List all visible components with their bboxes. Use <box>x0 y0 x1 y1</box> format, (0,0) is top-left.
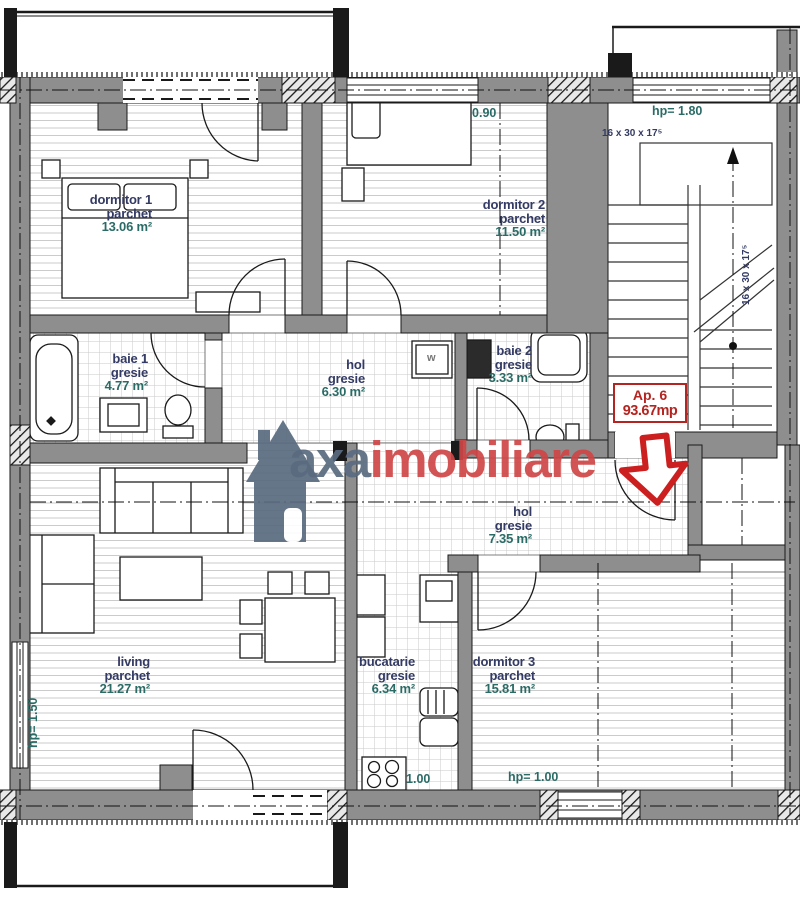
pier <box>160 765 192 790</box>
room-label-hol2: hol gresie 7.35 m² <box>462 505 532 546</box>
chair <box>305 572 329 594</box>
watermark-logo-text: axaimobiliare <box>289 434 596 485</box>
toilet-tank <box>163 426 193 438</box>
hp-label-dormitor3: hp= 1.00 <box>508 770 558 784</box>
wall-dorm1-dorm2 <box>302 103 322 315</box>
wall-bedrooms-hall-b <box>285 315 347 333</box>
pillow <box>352 98 380 138</box>
chair <box>268 572 292 594</box>
stair-dimension-note-vertical: 16 x 30 x 17⁵ <box>741 233 752 305</box>
stair-dimension-note: 16 x 30 x 17⁵ <box>602 128 662 139</box>
nightstand <box>190 160 208 178</box>
room-label-dormitor1: dormitor 1 parchet 13.06 m² <box>60 193 152 234</box>
dresser <box>196 292 260 312</box>
room-label-dormitor3: dormitor 3 parchet 15.81 m² <box>440 655 535 696</box>
coffee-table <box>120 557 202 600</box>
room-area: 6.34 m² <box>372 681 415 696</box>
room-label-hol1: hol gresie 6.30 m² <box>295 358 365 399</box>
insulation-bottom <box>0 820 800 825</box>
burner <box>386 761 399 774</box>
wall-dorm2-stairs <box>547 103 608 333</box>
chair <box>240 600 262 624</box>
apartment-area: 93.67mp <box>615 403 685 420</box>
shower-sink-inner <box>538 335 580 375</box>
room-area: 6.30 m² <box>322 384 365 399</box>
room-label-baie1: baie 1 gresie 4.77 m² <box>70 352 148 393</box>
room-label-bucatarie: bucatarie gresie 6.34 m² <box>340 655 415 696</box>
room-area: 4.77 m² <box>105 378 148 393</box>
stair-direction <box>727 147 739 428</box>
wall-bottom <box>0 790 800 820</box>
burner <box>368 775 381 788</box>
pier <box>262 103 287 130</box>
wall-baie1-stub <box>205 333 222 340</box>
wall-hol-dorm3-a <box>448 555 478 572</box>
nightstand <box>42 160 60 178</box>
room-label-dormitor2: dormitor 2 parchet 11.50 m² <box>445 198 545 239</box>
hp-label-stairs: hp= 1.80 <box>652 104 702 118</box>
wall-right <box>785 445 800 812</box>
watermark-part1: axa <box>289 431 370 488</box>
room-label-living: living parchet 21.27 m² <box>65 655 150 696</box>
insulation-top <box>0 72 800 77</box>
wall-bedrooms-hall-c <box>401 315 547 333</box>
appliance <box>420 718 458 746</box>
wall-shaft-bottom <box>688 545 785 560</box>
nightstand <box>342 168 364 201</box>
watermark-part2: imobiliare <box>370 431 596 488</box>
apartment-badge: Ap. 6 93.67mp <box>613 383 687 423</box>
toilet-bowl <box>165 395 191 425</box>
room-area: 7.35 m² <box>489 531 532 546</box>
chair <box>240 634 262 658</box>
washer-letter: w <box>427 352 436 364</box>
room-area: 11.50 m² <box>495 224 545 239</box>
hp-label-left-wall: hp= 1.50 <box>26 678 40 748</box>
room-area: 21.27 m² <box>100 681 150 696</box>
wall-baie1 <box>205 388 222 443</box>
room-area: 13.06 m² <box>102 219 152 234</box>
kitchen-sink <box>426 581 452 601</box>
wall-bedrooms-hall-a <box>30 315 229 333</box>
wall-hol-dorm3-b <box>540 555 700 572</box>
room-area: 3.33 m² <box>489 370 532 385</box>
sink <box>108 404 139 426</box>
floor-plan: hp= 0.90 hp= 1.00 <box>0 0 800 905</box>
apartment-number: Ap. 6 <box>615 387 685 403</box>
pier <box>98 103 127 130</box>
burner <box>369 762 380 773</box>
wall-hall-living <box>10 443 247 463</box>
room-area: 15.81 m² <box>485 681 535 696</box>
sofa <box>100 468 243 533</box>
wall-living-kitchen <box>345 443 357 790</box>
room-label-baie2: baie 2 gresie 3.33 m² <box>460 344 532 385</box>
wall-entry-a <box>608 432 615 458</box>
burner <box>387 776 398 787</box>
dining-table <box>265 598 335 662</box>
